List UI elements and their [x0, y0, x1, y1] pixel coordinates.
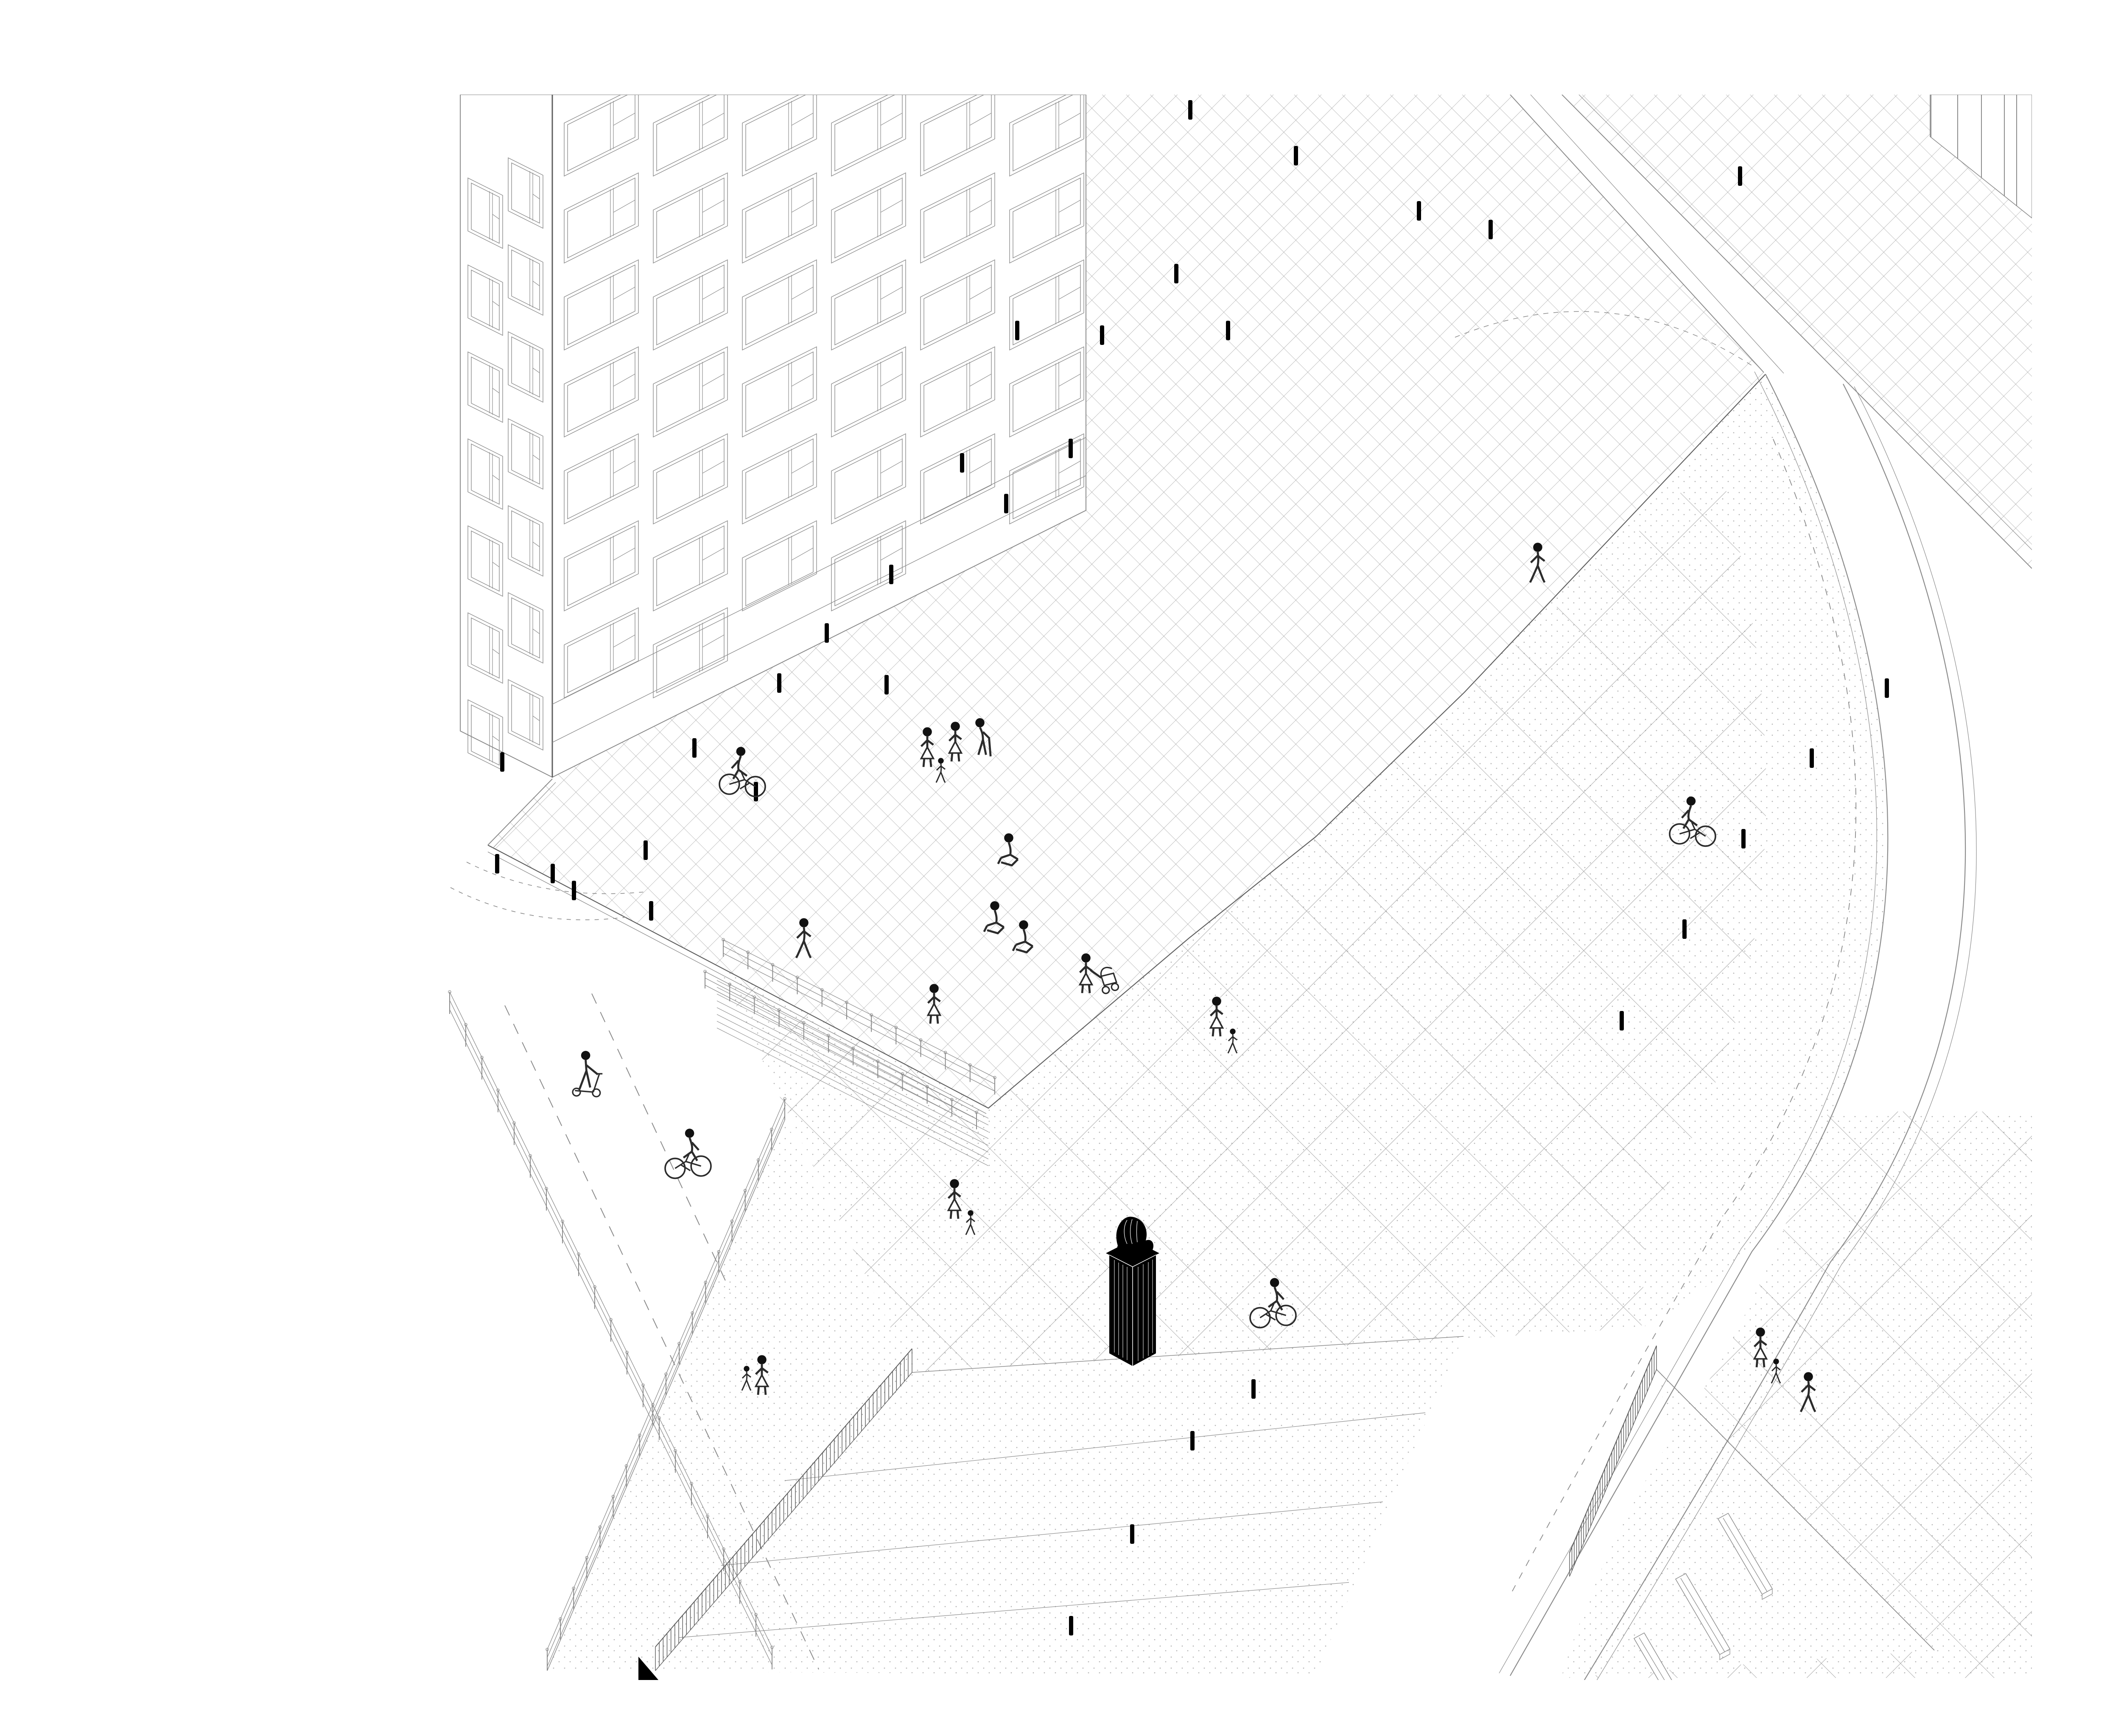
person-cyclist — [665, 1128, 711, 1178]
bollard — [1015, 321, 1019, 340]
drawing-layers — [448, 86, 2032, 1719]
figure-head — [1081, 953, 1091, 963]
figure-head — [1270, 1278, 1279, 1287]
bollard — [1738, 166, 1742, 186]
figure-head — [744, 1366, 749, 1372]
figure-head — [929, 984, 939, 993]
bollard — [1741, 829, 1746, 848]
figure-head — [923, 727, 932, 736]
bollard — [1069, 1616, 1073, 1635]
figure-head — [950, 1179, 959, 1188]
figure-head — [968, 1210, 973, 1216]
figure-head — [799, 918, 809, 927]
bollard — [825, 623, 829, 643]
figure-head — [685, 1128, 694, 1138]
bollard — [1188, 100, 1192, 120]
figure-head — [990, 901, 999, 910]
bollard — [649, 901, 653, 921]
bollard — [551, 864, 555, 883]
bollard — [1100, 325, 1104, 345]
axonometric-site-drawing — [0, 0, 2121, 1736]
bollard — [1190, 1431, 1195, 1450]
figure-head — [736, 747, 746, 756]
bollard — [692, 738, 697, 758]
drawing-svg — [0, 0, 2121, 1736]
bicycle-wheel — [691, 1156, 711, 1176]
bollard — [960, 453, 964, 473]
bollard — [1682, 919, 1687, 939]
figure-head — [975, 718, 985, 728]
bollard — [1294, 146, 1298, 165]
figure-head — [1756, 1327, 1765, 1337]
bollard — [495, 854, 499, 874]
bollard — [1174, 264, 1178, 283]
bollard — [1004, 494, 1008, 513]
figure-head — [1687, 796, 1696, 806]
person-scooter — [573, 1051, 602, 1097]
figure-head — [1804, 1372, 1813, 1381]
figure-head — [1212, 997, 1221, 1006]
figure-head — [757, 1355, 767, 1364]
figure-head — [951, 722, 960, 731]
bollard — [1251, 1379, 1256, 1399]
figure-head — [1004, 833, 1013, 843]
bollard — [1489, 220, 1493, 239]
bollard — [884, 675, 889, 694]
bollard — [1069, 439, 1073, 458]
bollard — [1885, 678, 1889, 698]
bollard — [1620, 1011, 1624, 1030]
figure-head — [1533, 543, 1542, 552]
bridge-lane-dash-2 — [592, 994, 730, 1290]
figure-head — [581, 1051, 590, 1060]
figure-head — [1019, 920, 1028, 930]
bollard — [644, 840, 648, 860]
bollard — [1417, 201, 1421, 221]
figure-head — [1773, 1359, 1779, 1364]
bollard — [777, 673, 781, 693]
bollard — [889, 565, 893, 584]
bollard — [754, 782, 758, 801]
figure-head — [1230, 1029, 1235, 1034]
building-left-face — [460, 95, 552, 777]
bollard — [1226, 321, 1230, 340]
bollard — [500, 752, 504, 772]
bollard — [1130, 1524, 1134, 1544]
bollard — [1810, 748, 1814, 768]
figure-head — [938, 758, 943, 764]
scooter-wheel — [573, 1088, 580, 1096]
bollard — [572, 881, 576, 900]
